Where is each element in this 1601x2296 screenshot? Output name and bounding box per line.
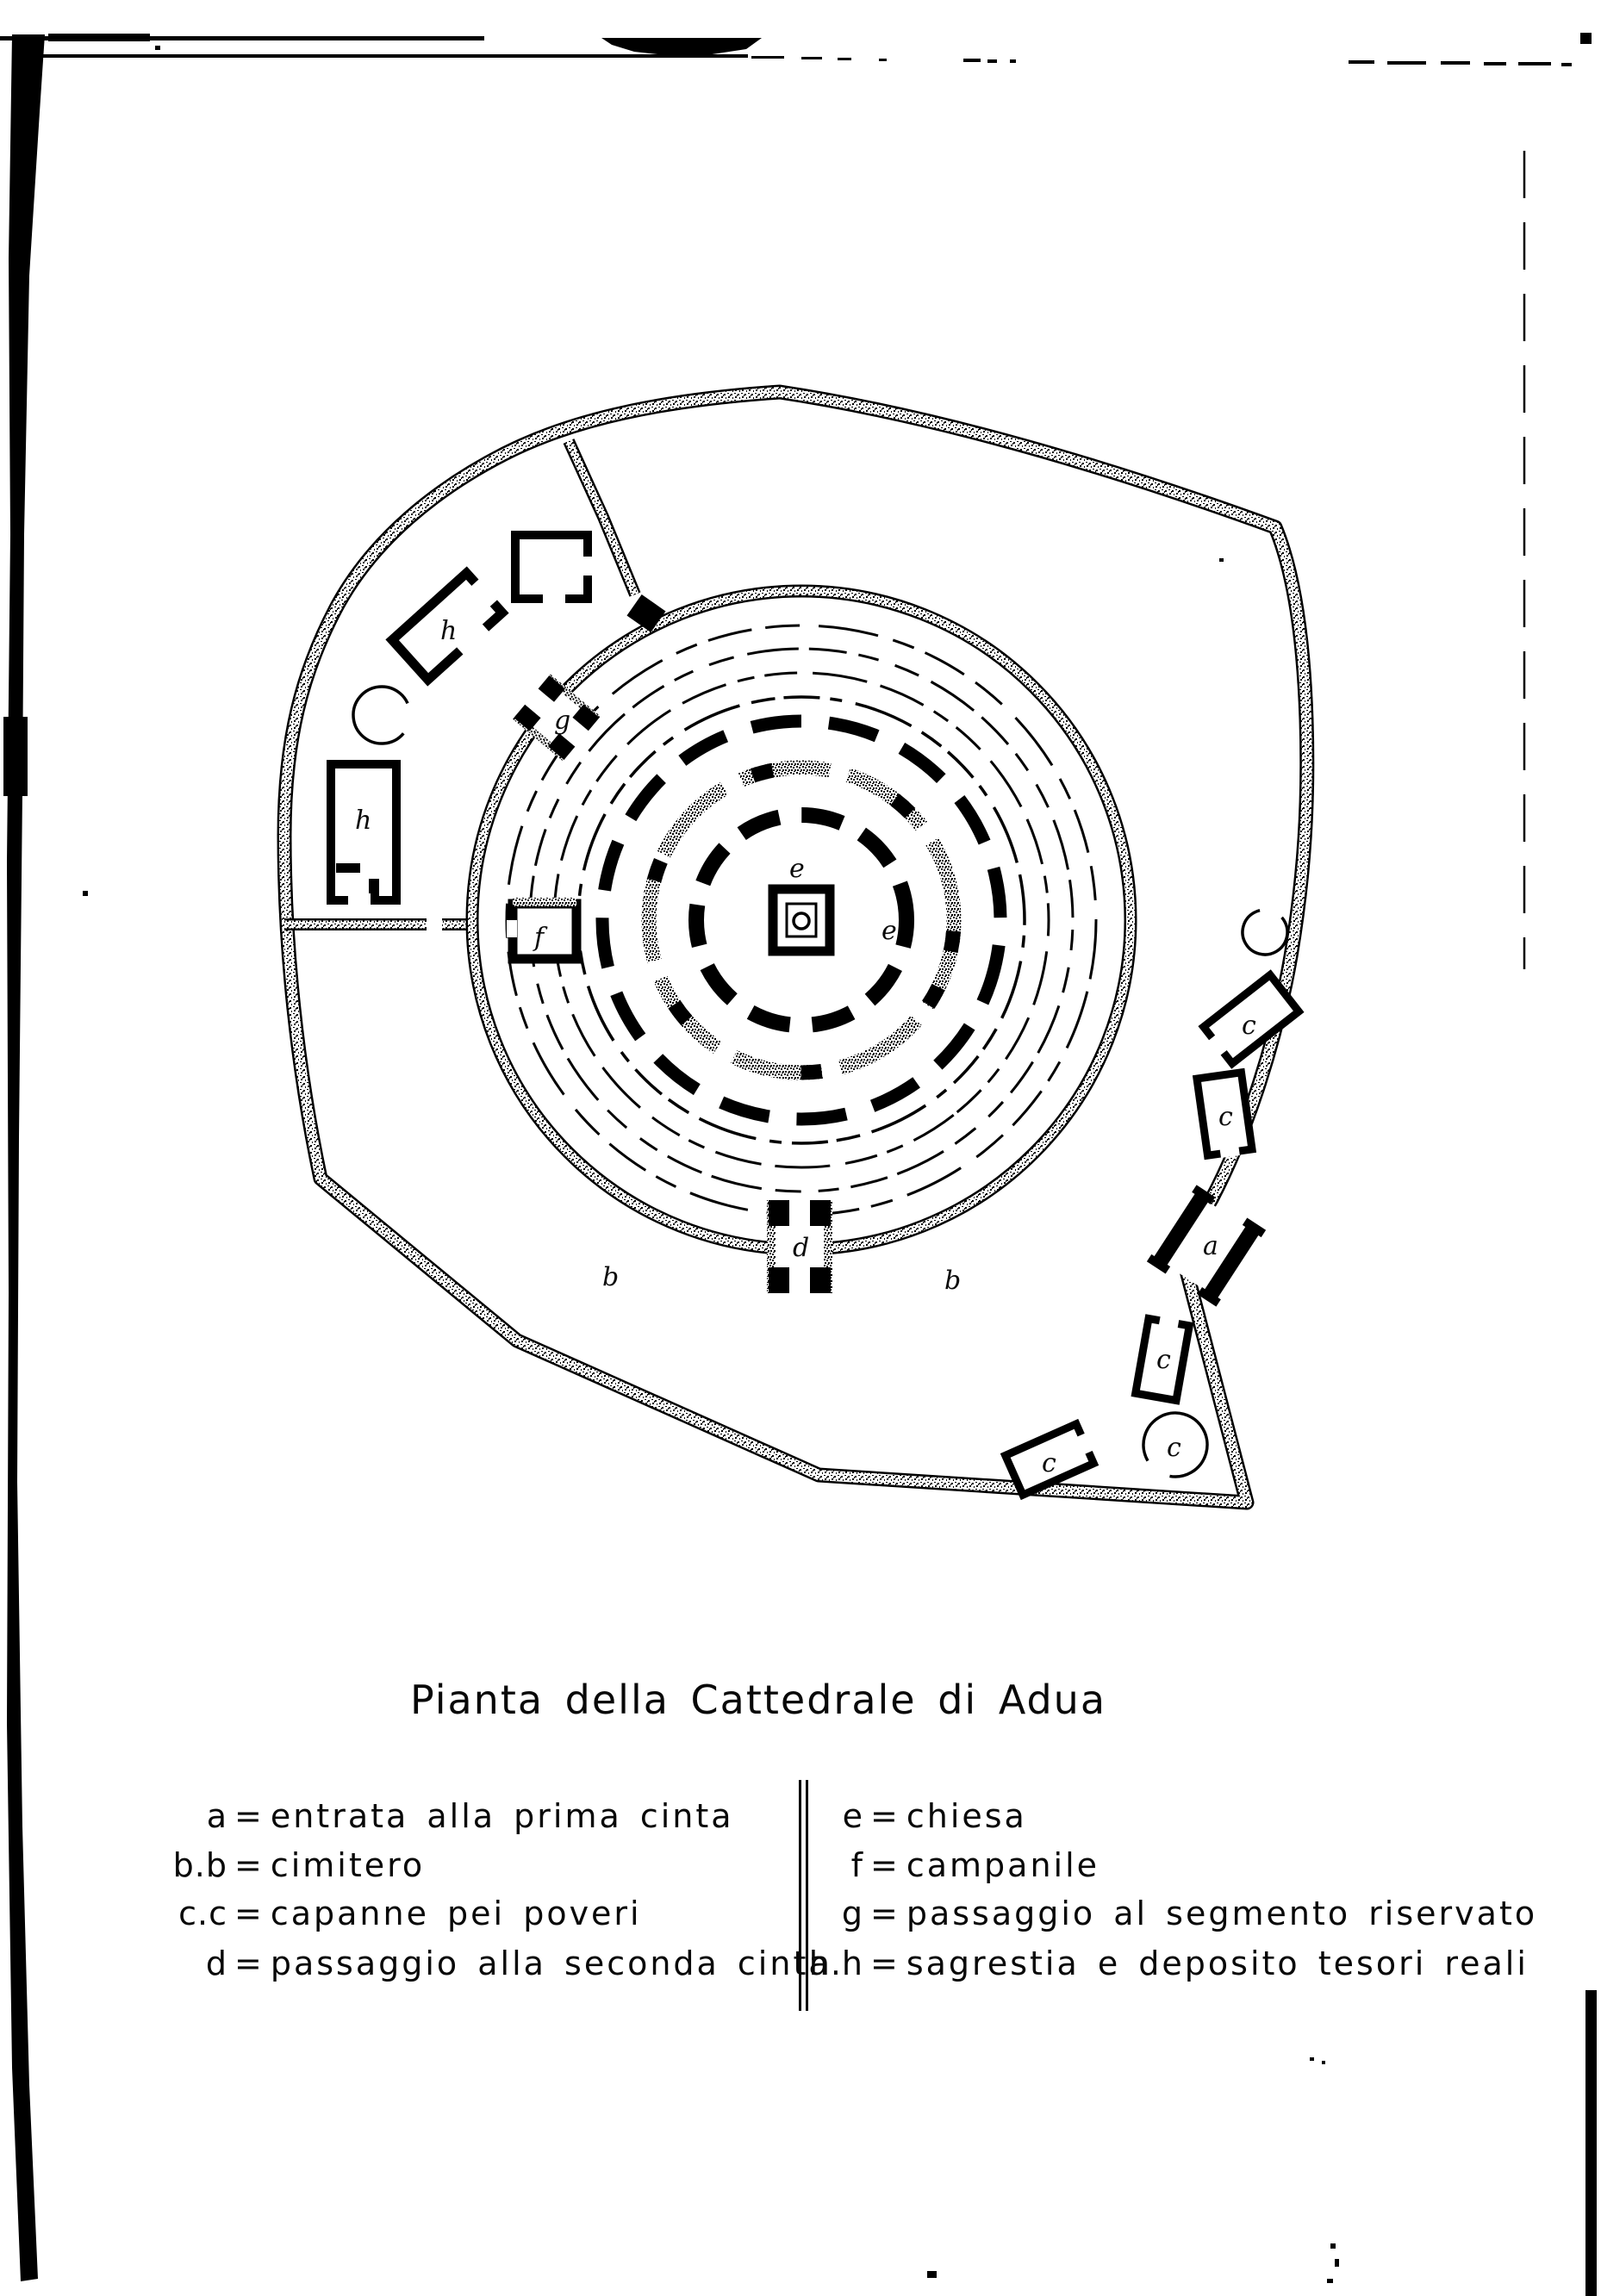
equals-sign: = xyxy=(870,1797,898,1835)
page-title: Pianta della Cattedrale di Adua xyxy=(362,1677,1155,1723)
legend-row-cc: c.c=capanne pei poveri xyxy=(0,1895,642,1938)
equals-sign: = xyxy=(870,1944,898,1982)
legend-row-d: d=passaggio alla seconda cinta xyxy=(0,1944,832,1988)
equals-sign: = xyxy=(870,1846,898,1884)
scan-right-bar xyxy=(1585,1990,1597,2296)
label-g: g xyxy=(554,706,570,736)
equals-sign: = xyxy=(234,1944,262,1982)
legend-row-bb: b.b=cimitero xyxy=(0,1846,425,1889)
label-a: a xyxy=(1203,1231,1218,1261)
legend-text: passaggio al segmento riservato xyxy=(906,1895,1537,1932)
equals-sign: = xyxy=(234,1797,262,1835)
label-h-2: h xyxy=(355,806,371,836)
label-e-1: e xyxy=(789,854,805,884)
label-h-1: h xyxy=(440,616,457,646)
label-c-3: c xyxy=(1156,1345,1171,1375)
label-b-1: b xyxy=(602,1262,619,1292)
legend-text: chiesa xyxy=(906,1797,1027,1835)
plan-labels: h h g f e e d b b a c c c c c xyxy=(355,616,1256,1478)
legend-text: entrata alla prima cinta xyxy=(271,1797,734,1835)
legend-text: capanne pei poveri xyxy=(271,1895,642,1932)
equals-sign: = xyxy=(234,1846,262,1884)
label-e-2: e xyxy=(881,916,897,946)
legend-key: b.b xyxy=(0,1846,227,1884)
label-c-4: c xyxy=(1167,1433,1181,1463)
scanned-book-page: h h g f e e d b b a c c c c c xyxy=(0,0,1601,2296)
legend-row-hh: h.h=sagrestia e deposito tesori reali xyxy=(774,1944,1529,1988)
legend-row-f: f=campanile xyxy=(774,1846,1100,1889)
legend-key: e xyxy=(774,1797,863,1835)
label-c-2: c xyxy=(1218,1102,1233,1132)
legend-key: d xyxy=(0,1944,227,1982)
legend-text: sagrestia e deposito tesori reali xyxy=(906,1944,1529,1982)
legend-row-a: a=entrata alla prima cinta xyxy=(0,1797,734,1840)
label-d: d xyxy=(793,1233,809,1263)
building-square-top xyxy=(515,535,593,604)
label-c-1: c xyxy=(1242,1011,1256,1041)
round-hut-nw xyxy=(342,675,422,756)
legend-row-g: g=passaggio al segmento riservato xyxy=(774,1895,1537,1938)
legend-row-e: e=chiesa xyxy=(774,1797,1027,1840)
legend-key: g xyxy=(774,1895,863,1932)
legend-text: campanile xyxy=(906,1846,1100,1884)
legend-key: f xyxy=(774,1846,863,1884)
legend-text: cimitero xyxy=(271,1846,425,1884)
legend-text: passaggio alla seconda cinta xyxy=(271,1944,832,1982)
scan-left-blob xyxy=(3,717,28,796)
legend-key: a xyxy=(0,1797,227,1835)
label-c-5: c xyxy=(1042,1448,1056,1478)
equals-sign: = xyxy=(234,1895,262,1932)
label-b-2: b xyxy=(944,1266,961,1296)
equals-sign: = xyxy=(870,1895,898,1932)
legend-key: h.h xyxy=(774,1944,863,1982)
legend-key: c.c xyxy=(0,1895,227,1932)
scan-corner-dot xyxy=(1580,33,1592,44)
